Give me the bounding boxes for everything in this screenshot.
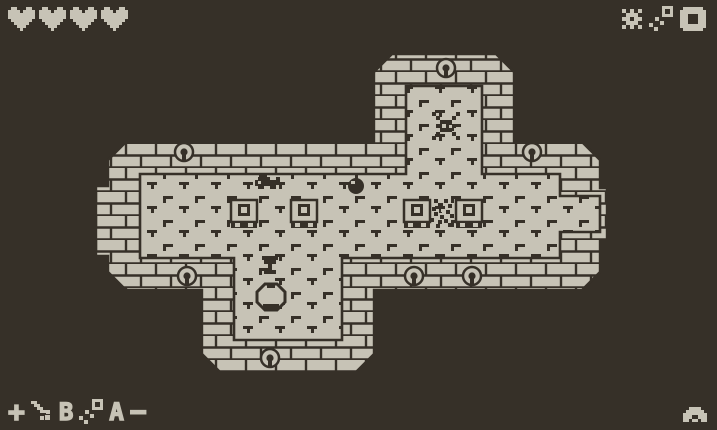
pedestal-icon <box>404 200 430 228</box>
b-button-label: B <box>59 399 73 425</box>
health-hearts <box>8 7 128 31</box>
dpad-plus-glyph: + <box>8 399 25 425</box>
sparkle-icon <box>649 6 673 32</box>
heart-icon <box>8 7 35 31</box>
game-screen[interactable]: + B A − <box>0 0 717 430</box>
keyhole-emblem-icon <box>261 349 279 367</box>
pedestal-icon <box>456 200 482 228</box>
a-button-label: A <box>109 399 123 425</box>
menu-corner <box>683 407 707 422</box>
sparkle-icon <box>79 399 103 425</box>
keyhole-emblem-icon <box>405 267 423 285</box>
keyhole-emblem-icon <box>523 143 541 161</box>
minus-glyph: − <box>130 399 147 425</box>
keyhole-emblem-icon <box>178 267 196 285</box>
dungeon-map <box>0 0 717 430</box>
inventory-items <box>622 6 706 32</box>
burst-icon <box>622 9 642 29</box>
heart-icon <box>70 7 97 31</box>
keyhole-emblem-icon <box>437 59 455 77</box>
keyhole-emblem-icon <box>175 143 193 161</box>
button-bar: + B A − <box>8 398 147 426</box>
creature-icon <box>683 407 707 422</box>
heart-icon <box>39 7 66 31</box>
heart-icon <box>101 7 128 31</box>
empty-slot-box-icon <box>680 7 706 31</box>
keyhole-emblem-icon <box>463 267 481 285</box>
pedestal-icon <box>291 200 317 228</box>
pedestal-icon <box>231 200 257 228</box>
pot-icon <box>257 283 285 310</box>
sword-icon <box>31 401 53 423</box>
ball-enemy-icon <box>348 178 364 194</box>
